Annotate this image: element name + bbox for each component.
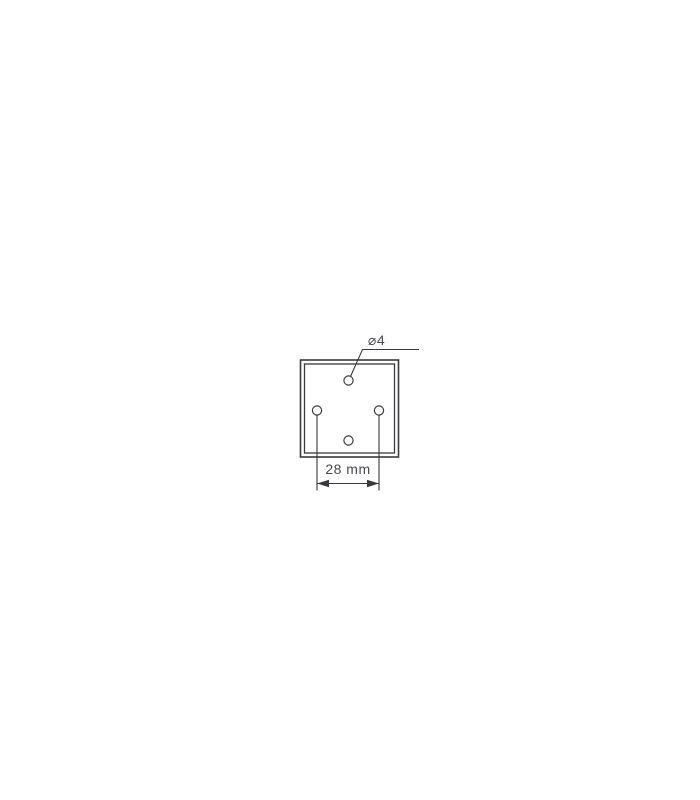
hole-bottom: [344, 436, 353, 445]
dimension-arrowhead-left: [317, 480, 329, 488]
dimension-arrowhead-right: [367, 480, 379, 488]
hole-diameter-label: ⌀4: [368, 332, 385, 348]
leader-line: [351, 350, 420, 377]
hole-top: [344, 376, 353, 385]
mounting-plate-diagram: ⌀4 28 mm: [0, 0, 700, 800]
page-background: ⌀4 28 mm: [0, 0, 700, 800]
hole-spacing-label: 28 mm: [325, 461, 370, 477]
plate-inner-outline: [305, 364, 395, 453]
hole-left: [312, 406, 321, 415]
hole-right: [374, 406, 383, 415]
